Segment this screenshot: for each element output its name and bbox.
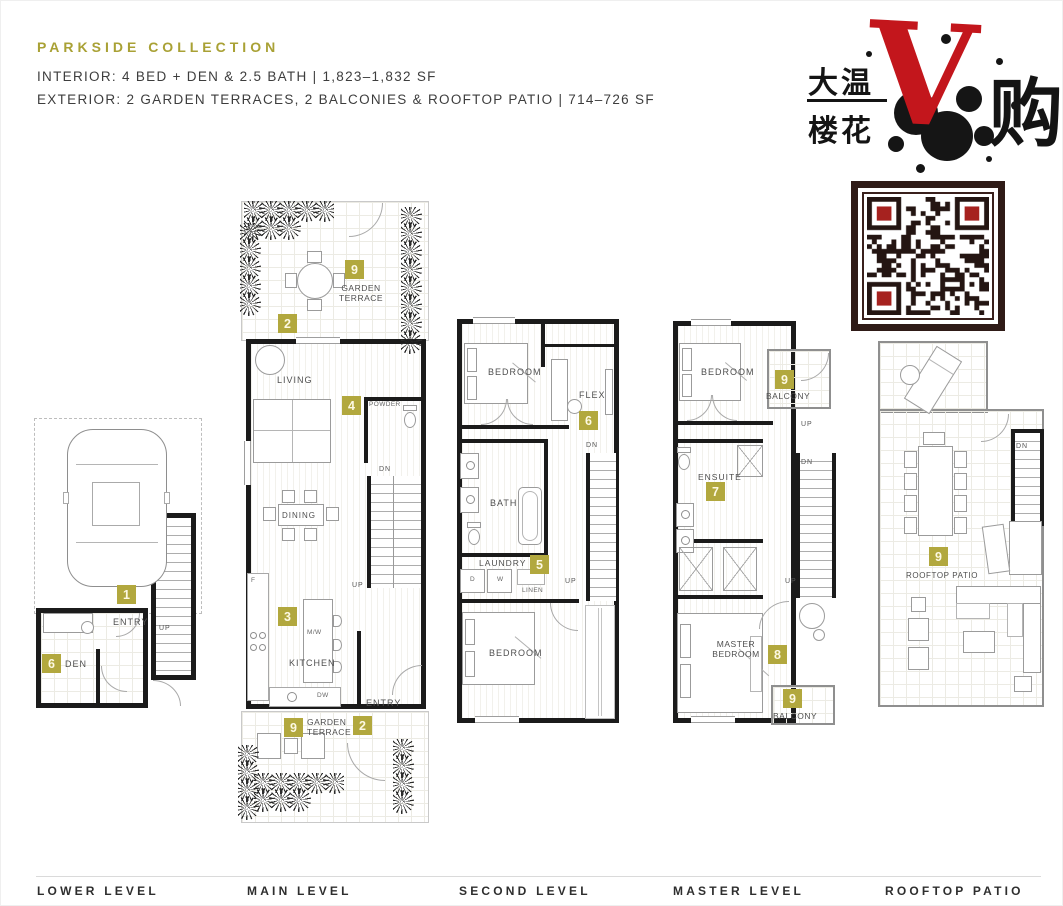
desk-chair-icon [81, 621, 94, 634]
level-label-main: MAIN LEVEL [247, 884, 352, 898]
marker-balcony-top: 9 [775, 370, 794, 389]
label-bedroom-top: BEDROOM [488, 367, 542, 377]
kitchen-counter-icon [269, 687, 341, 707]
chair-icon [954, 473, 967, 490]
kitchen-island-icon [303, 599, 333, 683]
chair-icon [911, 597, 926, 612]
toilet-bowl-icon [404, 412, 416, 428]
marker-terrace-top: 9 [345, 260, 364, 279]
patio-chair-icon [307, 251, 322, 263]
marker-kitchen: 3 [278, 607, 297, 626]
chair-icon [904, 517, 917, 534]
page-title: PARKSIDE COLLECTION [37, 39, 279, 55]
level-label-second: SECOND LEVEL [459, 884, 591, 898]
closet-icon [585, 605, 615, 719]
label-balcony-bottom: BALCONY [773, 711, 817, 721]
ottoman-icon [1014, 676, 1032, 692]
label-kitchen: KITCHEN [289, 658, 336, 668]
stairs-dn-label: DN [1016, 443, 1028, 450]
sectional-sofa-icon [1023, 603, 1041, 673]
stairs-dn-label: DN [801, 459, 813, 466]
sink-icon [287, 692, 297, 702]
marker-2-top: 2 [278, 314, 297, 333]
label-ensuite: ENSUITE [698, 472, 742, 482]
microwave-label: M/W [307, 629, 322, 636]
level-label-rooftop: ROOFTOP PATIO [885, 884, 1024, 898]
side-table-icon [813, 629, 825, 641]
marker-entry: 1 [117, 585, 136, 604]
label-rooftop-patio: ROOFTOP PATIO [906, 571, 978, 580]
label-dining: DINING [282, 511, 316, 520]
chair-icon [304, 490, 317, 503]
chair-icon [904, 451, 917, 468]
logo-v: V [864, 3, 980, 148]
footer-divider [36, 876, 1041, 877]
qr-inner-frame [862, 192, 994, 320]
toilet-icon [677, 447, 691, 453]
wechat-qr-code [851, 181, 1005, 331]
label-entry: ENTRY [113, 617, 148, 627]
stairs-dn-label: DN [379, 466, 391, 473]
label-garden-terrace-top: GARDEN TERRACE [331, 283, 391, 303]
chair-icon [326, 507, 339, 521]
chair-icon [954, 495, 967, 512]
toilet-icon [403, 405, 417, 411]
sink-icon [460, 453, 479, 479]
chair-icon [954, 451, 967, 468]
dishwasher-label: DW [317, 692, 329, 699]
label-laundry: LAUNDRY [479, 558, 526, 568]
stairs-dn-label: DN [586, 442, 598, 449]
shrub-column-icon [401, 207, 427, 377]
chair-icon [908, 618, 929, 641]
washer-label: W [497, 576, 504, 583]
stairs-up-label: UP [352, 582, 364, 589]
bathtub-icon [518, 487, 542, 545]
armchair-icon [255, 345, 285, 375]
interior-spec: INTERIOR: 4 BED + DEN & 2.5 BATH | 1,823… [37, 69, 437, 84]
chair-icon [904, 473, 917, 490]
shrub-row-icon [254, 773, 344, 821]
sofa-cushion-icon [1007, 603, 1023, 637]
label-bath: BATH [490, 498, 517, 508]
brand-logo: 大温 楼花 V 购 [796, 6, 1061, 176]
linen-label: LINEN [522, 587, 543, 594]
marker-ensuite: 7 [706, 482, 725, 501]
label-entry: ENTRY [366, 698, 401, 708]
chair-icon [282, 490, 295, 503]
toilet-bowl-icon [678, 454, 690, 470]
label-balcony-top: BALCONY [766, 391, 810, 401]
label-master-bedroom: MASTER BEDROOM [709, 639, 763, 659]
stool-icon [333, 615, 342, 627]
marker-rooftop: 9 [929, 547, 948, 566]
sofa-icon [253, 399, 331, 463]
marker-master-bedroom: 8 [768, 645, 787, 664]
label-flex: FLEX [579, 390, 606, 400]
chair-icon [263, 507, 276, 521]
shrub-column-icon [393, 739, 419, 823]
stairs-up-label: UP [801, 421, 813, 428]
chair-icon [282, 528, 295, 541]
stairs-up-label: UP [565, 578, 577, 585]
label-den: DEN [65, 659, 87, 669]
exterior-spec: EXTERIOR: 2 GARDEN TERRACES, 2 BALCONIES… [37, 92, 655, 107]
stairs-icon [796, 453, 836, 598]
bed-icon [677, 613, 763, 713]
label-bedroom: BEDROOM [701, 367, 755, 377]
shrub-column-icon [240, 223, 266, 335]
logo-cn-right: 购 [989, 54, 1063, 161]
stairs-icon [367, 476, 421, 588]
coffee-table-icon [963, 631, 995, 653]
stairs-icon [586, 453, 616, 601]
marker-powder: 4 [342, 396, 361, 415]
side-table-icon [284, 738, 298, 754]
marker-laundry: 5 [530, 555, 549, 574]
logo-cn-top: 大温 [808, 58, 874, 102]
chaise-icon [551, 359, 568, 421]
marker-balcony-bottom: 9 [783, 689, 802, 708]
sectional-sofa-icon [956, 586, 1041, 604]
sink-icon [460, 487, 479, 513]
label-bedroom-bottom: BEDROOM [489, 648, 543, 658]
toilet-bowl-icon [468, 529, 480, 545]
patio-table-icon [297, 263, 333, 299]
side-table-icon [900, 365, 920, 385]
floorplan-flyer: PARKSIDE COLLECTION INTERIOR: 4 BED + DE… [0, 0, 1063, 906]
armchair-icon [799, 603, 825, 629]
level-label-lower: LOWER LEVEL [37, 884, 159, 898]
marker-flex: 6 [579, 411, 598, 430]
dryer-label: D [470, 576, 475, 583]
door-icon [153, 680, 181, 706]
toilet-icon [467, 522, 481, 528]
chair-icon [904, 495, 917, 512]
chair-icon [304, 528, 317, 541]
label-powder: POWDER [369, 401, 401, 408]
stairs-up-label: UP [159, 625, 171, 632]
car-icon [67, 429, 167, 587]
chair-icon [954, 517, 967, 534]
desk-icon [605, 369, 613, 415]
fridge-label: F [251, 577, 255, 584]
qr-canvas [867, 197, 989, 315]
sink-icon [676, 503, 694, 527]
marker-terrace-bottom: 9 [284, 718, 303, 737]
dining-table-icon [918, 446, 953, 536]
marker-den: 6 [42, 654, 61, 673]
label-living: LIVING [277, 375, 313, 385]
stool-icon [333, 639, 342, 651]
sofa-cushion-icon [956, 603, 990, 619]
level-label-master: MASTER LEVEL [673, 884, 804, 898]
wardrobe-icon [723, 547, 757, 591]
lounge-chair-icon [1009, 521, 1042, 575]
chair-icon [908, 647, 929, 670]
patio-chair-icon [285, 273, 297, 288]
chair-icon [923, 432, 945, 445]
patio-chair-icon [307, 299, 322, 311]
stairs-up-label: UP [785, 578, 797, 585]
marker-2-bottom: 2 [353, 716, 372, 735]
wardrobe-icon [679, 547, 713, 591]
label-garden-terrace-bottom: GARDEN TERRACE [307, 717, 357, 737]
